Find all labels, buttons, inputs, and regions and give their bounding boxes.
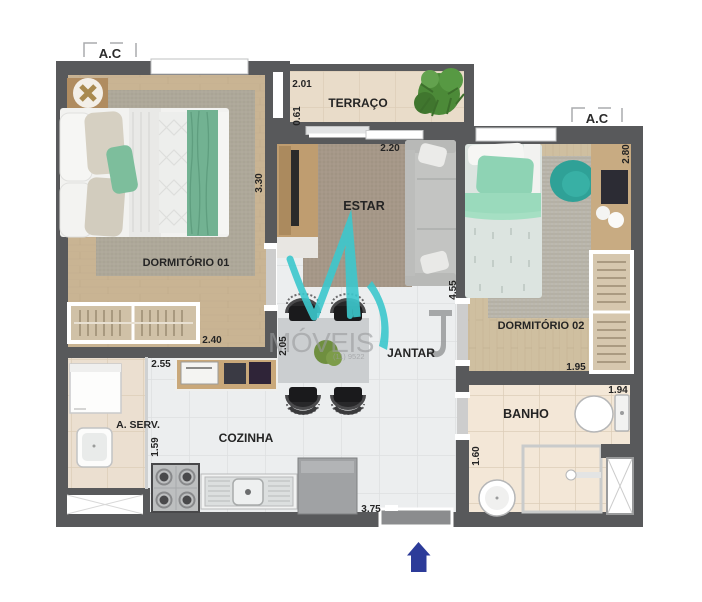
svg-text:2.20: 2.20 (380, 143, 400, 154)
svg-text:1.95: 1.95 (566, 362, 586, 373)
svg-text:TERRAÇO: TERRAÇO (328, 96, 387, 110)
svg-text:2.40: 2.40 (202, 335, 222, 346)
svg-text:2.80: 2.80 (621, 144, 632, 164)
svg-text:2.55: 2.55 (151, 359, 171, 370)
svg-text:2.01: 2.01 (292, 79, 312, 90)
svg-text:A. SERV.: A. SERV. (116, 419, 160, 431)
svg-text:JANTAR: JANTAR (387, 346, 435, 360)
svg-text:2.05: 2.05 (278, 336, 289, 356)
svg-text:1.59: 1.59 (150, 437, 161, 457)
svg-text:(11) 9522: (11) 9522 (333, 352, 365, 361)
svg-text:DORMITÓRIO 02: DORMITÓRIO 02 (498, 319, 585, 332)
svg-text:BANHO: BANHO (503, 407, 549, 421)
svg-text:A.C: A.C (99, 46, 122, 61)
svg-text:ESTAR: ESTAR (343, 199, 384, 213)
svg-text:1.60: 1.60 (471, 446, 482, 466)
svg-text:0.61: 0.61 (292, 106, 303, 126)
svg-text:4.55: 4.55 (448, 280, 459, 300)
svg-text:1.94: 1.94 (608, 385, 628, 396)
svg-text:3.30: 3.30 (254, 173, 265, 193)
svg-text:COZINHA: COZINHA (219, 431, 274, 445)
svg-text:3.75: 3.75 (361, 504, 381, 515)
svg-text:DORMITÓRIO 01: DORMITÓRIO 01 (143, 256, 230, 269)
svg-text:A.C: A.C (586, 111, 609, 126)
